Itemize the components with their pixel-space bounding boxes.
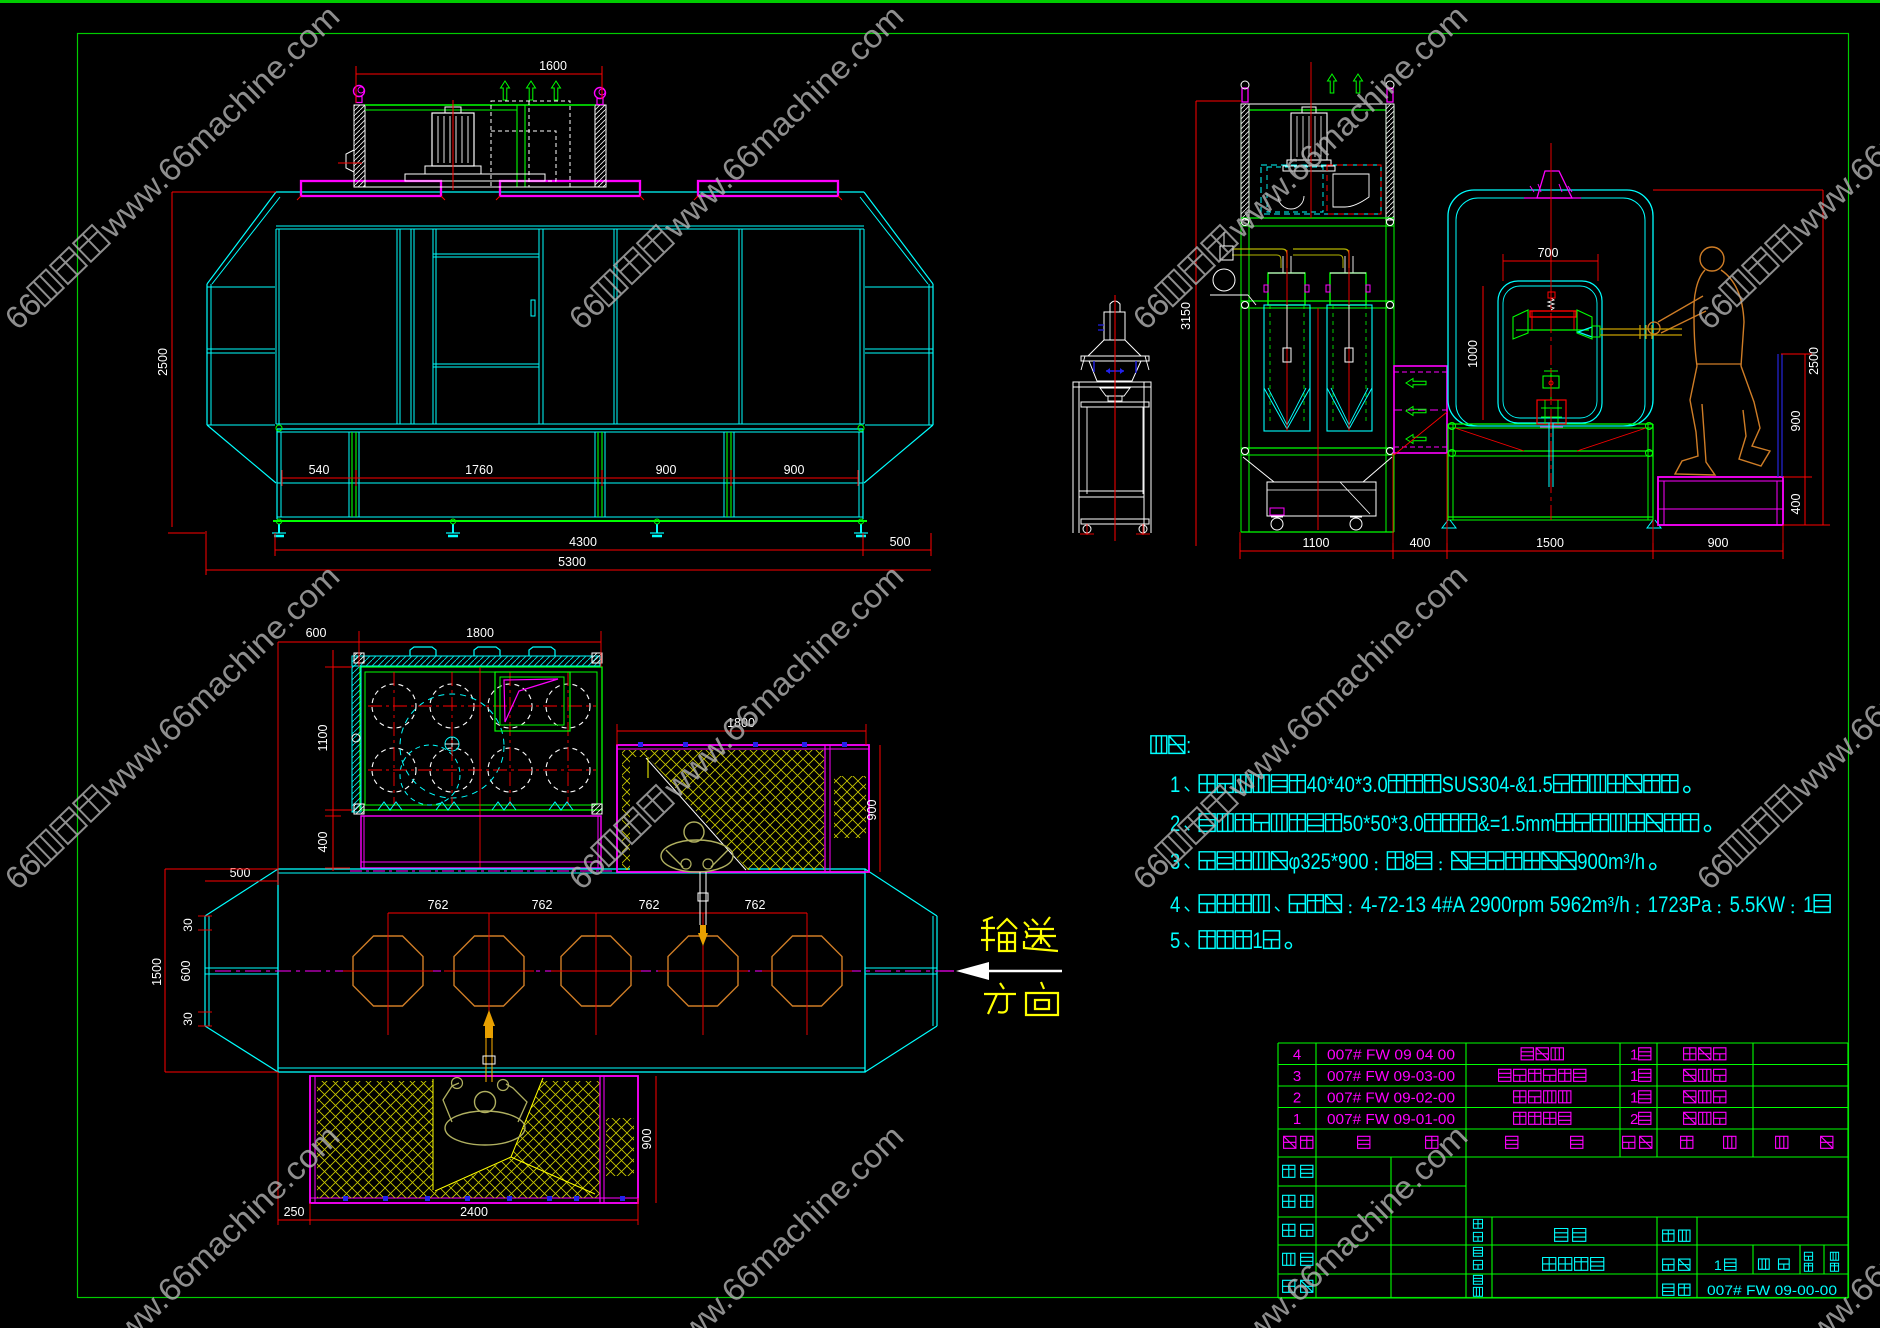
svg-text:007# FW 09-00-00: 007# FW 09-00-00	[1707, 1283, 1837, 1298]
svg-text:900: 900	[784, 463, 805, 477]
svg-text:1760: 1760	[465, 463, 493, 477]
svg-text:762: 762	[745, 898, 766, 912]
svg-text:250: 250	[284, 1205, 305, 1219]
svg-text:762: 762	[532, 898, 553, 912]
svg-text:φ325*900: φ325*900	[1289, 849, 1369, 874]
svg-text:1: 1	[1170, 772, 1180, 797]
svg-text:4: 4	[1293, 1047, 1301, 1064]
svg-text:762: 762	[639, 898, 660, 912]
svg-text:1: 1	[1252, 928, 1262, 953]
svg-text:4: 4	[1170, 892, 1180, 917]
svg-text:400: 400	[1789, 494, 1803, 515]
svg-text:600: 600	[179, 961, 193, 982]
svg-text:007# FW 09 04 00: 007# FW 09 04 00	[1327, 1048, 1455, 1064]
svg-text:1: 1	[1803, 892, 1813, 917]
svg-text:SUS304-&1.5: SUS304-&1.5	[1442, 772, 1553, 797]
svg-text:3150: 3150	[1179, 302, 1193, 330]
svg-text:1600: 1600	[539, 59, 567, 73]
svg-text:5.5KW: 5.5KW	[1730, 892, 1786, 917]
svg-text:007# FW 09-03-00: 007# FW 09-03-00	[1327, 1069, 1455, 1085]
svg-text:700: 700	[1538, 246, 1559, 260]
svg-text:&=1.5mm: &=1.5mm	[1478, 811, 1556, 836]
svg-text:600: 600	[306, 626, 327, 640]
svg-text:400: 400	[316, 832, 330, 853]
svg-text:400: 400	[1410, 536, 1431, 550]
svg-text:8: 8	[1405, 849, 1415, 874]
svg-text:1: 1	[1630, 1068, 1638, 1085]
svg-text:900: 900	[1708, 536, 1729, 550]
svg-text:5: 5	[1170, 928, 1180, 953]
svg-text:1: 1	[1293, 1111, 1301, 1128]
svg-text:1: 1	[1630, 1047, 1638, 1064]
svg-text:5300: 5300	[558, 555, 586, 569]
svg-text:900: 900	[640, 1129, 654, 1150]
svg-text::: :	[1186, 733, 1191, 758]
svg-text:900m³/h: 900m³/h	[1577, 849, 1645, 874]
svg-text:1800: 1800	[466, 626, 494, 640]
svg-text:1100: 1100	[316, 725, 330, 752]
svg-text:2: 2	[1293, 1090, 1301, 1107]
svg-text:2: 2	[1630, 1111, 1638, 1128]
svg-text:4-72-13 4#A 2900rpm 5962m³/h: 4-72-13 4#A 2900rpm 5962m³/h	[1361, 892, 1630, 917]
svg-text:1100: 1100	[1303, 536, 1330, 550]
svg-text:50*50*3.0: 50*50*3.0	[1343, 811, 1424, 836]
svg-text:1: 1	[1630, 1090, 1638, 1107]
svg-text:1000: 1000	[1466, 340, 1480, 368]
svg-text:762: 762	[428, 898, 449, 912]
svg-text:40*40*3.0: 40*40*3.0	[1307, 772, 1388, 797]
svg-text:1500: 1500	[1536, 536, 1564, 550]
svg-text:30: 30	[181, 918, 195, 932]
svg-text:2500: 2500	[1807, 347, 1821, 375]
svg-text:2500: 2500	[156, 348, 170, 376]
svg-text:500: 500	[230, 866, 251, 880]
svg-text:4300: 4300	[569, 535, 597, 549]
svg-text:1500: 1500	[150, 958, 164, 986]
svg-text:900: 900	[656, 463, 677, 477]
svg-text:1723Pa: 1723Pa	[1648, 892, 1712, 917]
svg-text:007# FW 09-01-00: 007# FW 09-01-00	[1327, 1112, 1455, 1128]
svg-text:900: 900	[865, 800, 879, 821]
svg-text:2400: 2400	[460, 1205, 488, 1219]
svg-text:1: 1	[1714, 1257, 1722, 1273]
svg-text:900: 900	[1789, 411, 1803, 432]
svg-text:30: 30	[181, 1012, 195, 1026]
svg-text:500: 500	[890, 535, 911, 549]
svg-text:007# FW 09-02-00: 007# FW 09-02-00	[1327, 1091, 1455, 1107]
svg-text:540: 540	[309, 463, 330, 477]
svg-text:3: 3	[1293, 1068, 1301, 1085]
